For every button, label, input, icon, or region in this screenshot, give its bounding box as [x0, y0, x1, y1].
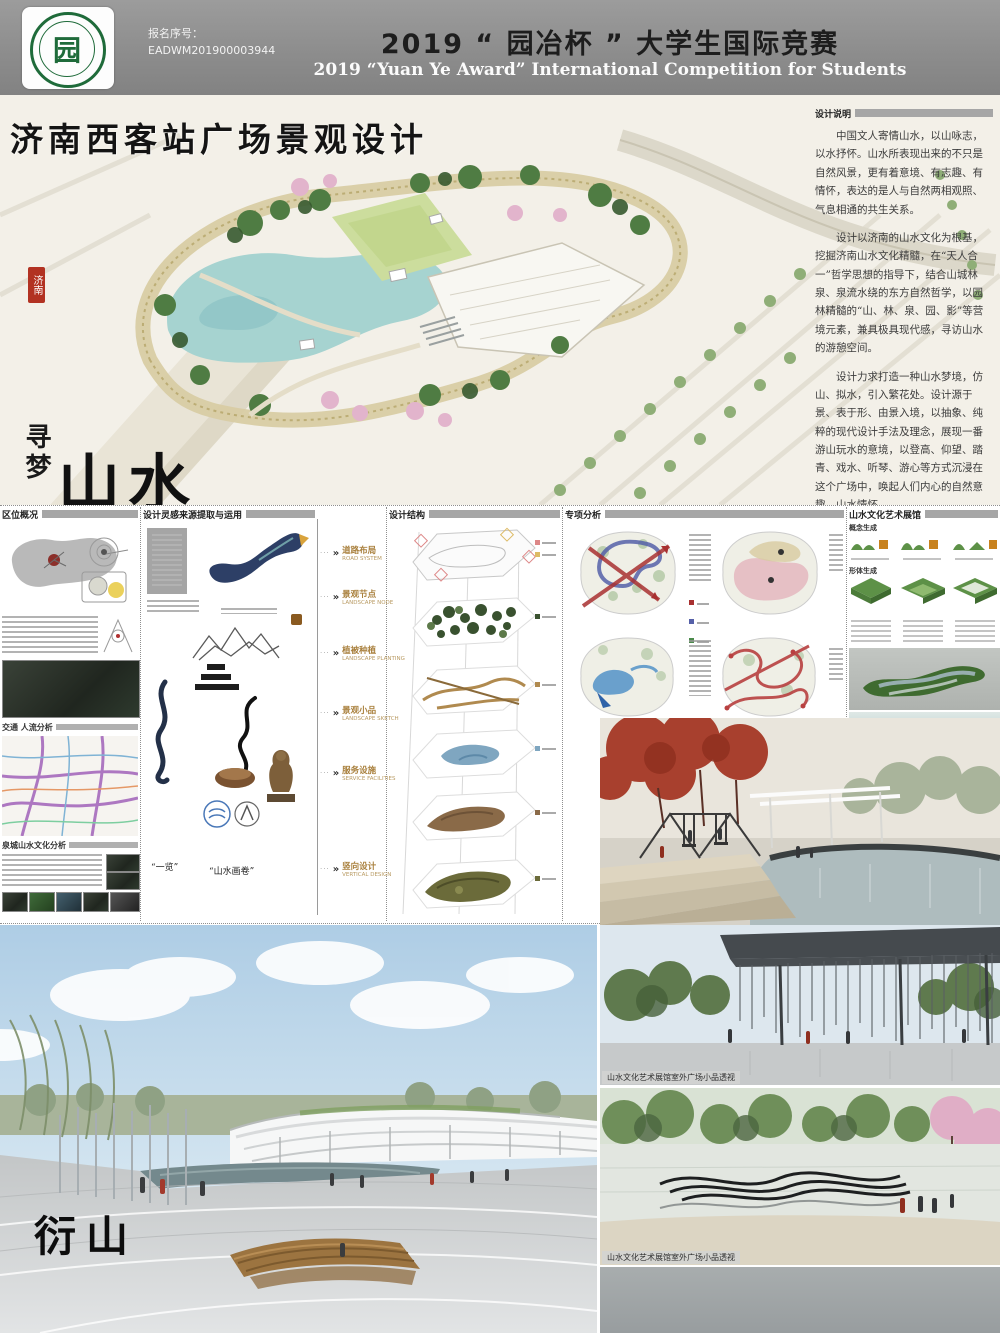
divider-5 — [846, 507, 847, 719]
render-wave-art — [600, 1088, 1000, 1265]
city-structure-diagram — [72, 528, 136, 618]
analysis-strip: 区位概况 — [0, 505, 1000, 925]
render-pergola-art — [600, 925, 1000, 1085]
annotation-lines — [903, 620, 943, 642]
form-axon-row — [849, 574, 998, 616]
annotation-lines — [689, 640, 711, 696]
header-rule — [42, 510, 138, 518]
label-en: VERTICAL DESIGN — [342, 872, 391, 878]
traffic-analysis-label: 交通 人流分析 — [2, 722, 53, 733]
header-bar: 园 报名序号： EADWM201900003944 2019 “ 园冶杯 ” 大… — [0, 0, 1000, 96]
project-title: 济南西客站广场景观设计 — [10, 113, 428, 161]
col1-subheader-2: 泉城山水文化分析 — [2, 840, 138, 850]
annotation-lines — [689, 534, 711, 584]
calligraphy-stroke-1 — [145, 678, 181, 788]
masterplan-section: 济南西客站广场景观设计 济南 寻梦 山水 设计说明 中国文人寄情山水，以山咏志，… — [0, 95, 1000, 505]
chevron-right-icon: » — [333, 592, 339, 603]
header-rule — [246, 510, 315, 518]
annotation-lines — [955, 558, 993, 563]
divider-4 — [562, 507, 563, 921]
label-cn: 竖向设计 — [342, 860, 391, 872]
gold-square-icon — [291, 614, 302, 625]
culture-photo-2 — [106, 872, 140, 890]
thumb-5 — [110, 892, 140, 912]
thumb-2 — [29, 892, 55, 912]
tour-route-diagram — [715, 630, 825, 722]
strip-top-rule — [0, 505, 1000, 506]
render-main-perspective: 衍山 — [0, 925, 597, 1333]
flow-label-4: ··· » 景观小品 LANDSCAPE SKETCH — [320, 704, 399, 722]
design-description-title: 设计说明 — [815, 107, 851, 120]
culture-photo-1 — [106, 854, 140, 872]
terrace-steps-sketch — [195, 660, 245, 694]
dash-leader: ··· — [320, 709, 330, 717]
competition-logo: 园 — [22, 7, 114, 89]
flow-label-2: ··· » 景观节点 LANDSCAPE NODE — [320, 588, 393, 606]
description-paragraph-3: 设计力求打造一种山水梦境，仿山、拟水，引入繁花处。设计源于景、表于形、由景入境，… — [815, 368, 993, 515]
annotation-lines — [851, 620, 891, 642]
divider-2 — [317, 519, 318, 915]
annotation-lines — [152, 534, 182, 588]
render-main-art — [0, 925, 597, 1333]
col2-header: 设计灵感来源提取与运用 — [143, 508, 315, 520]
river-ribbon-art — [203, 522, 315, 606]
circulation-diagram — [573, 524, 683, 620]
water-emblem-icons — [201, 794, 261, 834]
col4-header: 专项分析 — [565, 508, 844, 520]
strip-bottom-rule — [0, 923, 600, 924]
annotation-lines — [829, 648, 843, 682]
flow-label-5: ··· » 服务设施 SERVICE FACILITIES — [320, 764, 396, 782]
label-en: ROAD SYSTEM — [342, 556, 382, 562]
chevron-right-icon: » — [333, 648, 339, 659]
logo-inner-ring: 园 — [39, 21, 95, 77]
flow-label-6: ··· » 竖向设计 VERTICAL DESIGN — [320, 860, 391, 878]
thumb-4 — [83, 892, 109, 912]
slogan-yanshan: 衍山 — [34, 1203, 138, 1264]
label-cn: 景观节点 — [342, 588, 393, 600]
label-cn: 道路布局 — [342, 544, 382, 556]
logo-ring-icon: 园 — [30, 12, 106, 88]
chevron-right-icon: » — [333, 768, 339, 779]
label-en: SERVICE FACILITIES — [342, 776, 395, 782]
label-en: LANDSCAPE NODE — [342, 600, 393, 606]
caption-yilan: “一览” — [151, 860, 178, 873]
annotation-lines — [903, 558, 941, 563]
col1-title: 区位概况 — [2, 508, 38, 521]
design-description-panel: 设计说明 中国文人寄情山水，以山咏志，以水抒怀。山水所表现出来的不只是自然风景，… — [815, 107, 993, 499]
mountain-ridge-sketch — [191, 620, 281, 664]
render-swing-art — [600, 718, 1000, 925]
pavilion-ribbon-sketch — [849, 648, 1000, 710]
logo-character: 园 — [53, 29, 81, 69]
dash-leader: ··· — [320, 649, 330, 657]
poster-page: 园 报名序号： EADWM201900003944 2019 “ 园冶杯 ” 大… — [0, 0, 1000, 1333]
chevron-right-icon: » — [333, 548, 339, 559]
render-wave-sculpture: 山水文化艺术展馆室外广场小品透视 — [600, 1088, 1000, 1265]
flow-label-1: ··· » 道路布局 ROAD SYSTEM — [320, 544, 382, 562]
col1-header: 区位概况 — [2, 508, 138, 520]
dash-leader: ··· — [320, 549, 330, 557]
concept-icon-row — [849, 532, 998, 556]
dash-leader: ··· — [320, 593, 330, 601]
traffic-flow-map — [2, 736, 138, 836]
sculpture-caption: 山水文化艺术展馆室外广场小品透视 — [602, 1251, 740, 1264]
layer-stack-diagram — [389, 522, 560, 920]
competition-title-en: 2019 “Yuan Ye Award” International Compe… — [250, 60, 970, 80]
description-paragraph-2: 设计以济南的山水文化为根基，挖掘济南山水文化精髓，在“天人合一”哲学思想的指导下… — [815, 229, 993, 358]
col5-title: 山水文化艺术展馆 — [849, 508, 921, 521]
col3-header: 设计结构 — [389, 508, 560, 520]
thumb-1 — [2, 892, 28, 912]
spring-stone-icon — [213, 760, 257, 790]
jinan-seal: 济南 — [28, 267, 45, 303]
culture-analysis-label: 泉城山水文化分析 — [2, 840, 66, 851]
annotation-lines — [2, 616, 98, 656]
description-paragraph-1: 中国文人寄情山水，以山咏志，以水抒怀。山水所表现出来的不只是自然风景，更有着意境… — [815, 127, 993, 219]
dash-leader: ··· — [320, 865, 330, 873]
label-cn: 服务设施 — [342, 764, 395, 776]
circulation-legend — [689, 590, 709, 647]
dash-leader: ··· — [320, 769, 330, 777]
col3-title: 设计结构 — [389, 508, 425, 521]
header-rule — [605, 510, 844, 518]
header-rule — [56, 724, 138, 730]
annotation-lines — [829, 534, 843, 574]
annotation-lines — [955, 620, 995, 642]
pavement-block — [600, 1267, 1000, 1333]
intro-text-card — [147, 528, 187, 594]
chevron-right-icon: » — [333, 708, 339, 719]
competition-title-cn: 2019 “ 园冶杯 ” 大学生国际竞赛 — [250, 22, 970, 61]
thumb-3 — [56, 892, 82, 912]
annotation-lines — [851, 558, 889, 563]
column-structure: 设计结构 — [389, 508, 560, 920]
column-inspiration: 设计灵感来源提取与运用 — [143, 508, 315, 920]
render-swing-plaza — [600, 718, 1000, 925]
ribbon-form — [849, 648, 1000, 710]
column-site-context: 区位概况 — [2, 508, 138, 920]
node-diagram — [98, 612, 138, 658]
col2-title: 设计灵感来源提取与运用 — [143, 508, 242, 521]
render-pergola: 山水文化艺术展馆室外广场小品透视 — [600, 925, 1000, 1085]
annotation-lines — [2, 854, 102, 888]
col4-title: 专项分析 — [565, 508, 601, 521]
header-rule — [429, 510, 560, 518]
annotation-lines — [221, 608, 277, 614]
annotation-lines — [147, 600, 199, 612]
flow-label-strip: ··· » 道路布局 ROAD SYSTEM ··· » 景观节点 LANDSC… — [320, 508, 386, 920]
chevron-right-icon: » — [333, 864, 339, 875]
divider-1 — [140, 507, 141, 921]
site-aerial-photo — [2, 660, 140, 718]
slogan-xunmeng: 寻梦 — [18, 423, 55, 483]
water-system-diagram — [573, 630, 683, 722]
buddha-statue-icon — [263, 744, 299, 804]
col1-subheader-1: 交通 人流分析 — [2, 722, 138, 732]
caption-shanshui-scroll: “山水画卷” — [209, 864, 254, 877]
header-rule — [855, 109, 993, 117]
design-description-header: 设计说明 — [815, 107, 993, 119]
zoning-diagram — [715, 524, 825, 620]
col5-header: 山水文化艺术展馆 — [849, 508, 998, 520]
header-rule — [925, 510, 998, 518]
header-rule — [69, 842, 138, 848]
pergola-caption: 山水文化艺术展馆室外广场小品透视 — [602, 1071, 740, 1084]
